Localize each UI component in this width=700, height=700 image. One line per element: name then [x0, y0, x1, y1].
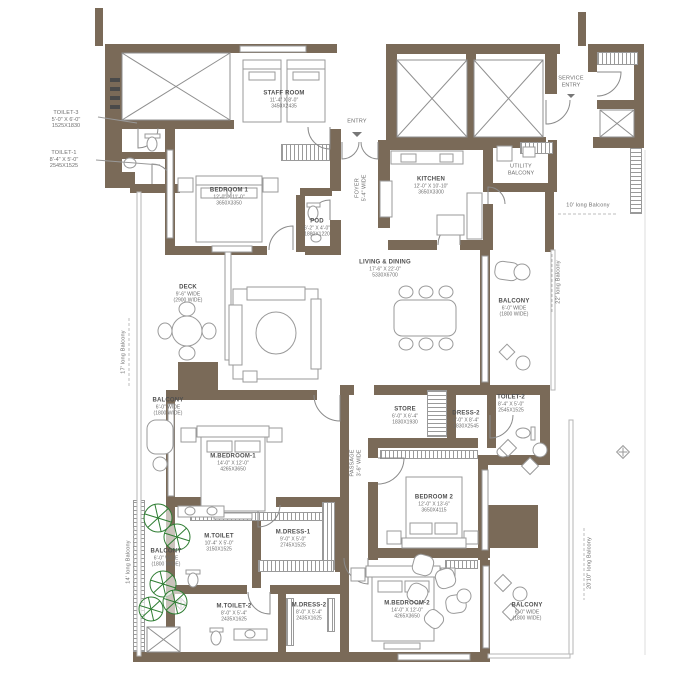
label-toilet-3-line-1: 5'-0" X 6'-0" [52, 117, 81, 124]
label-toilet-2-line-0: TOILET-2 [497, 394, 525, 401]
headboard [402, 538, 466, 548]
label-utility-balcony-line-1: BALCONY [508, 170, 534, 177]
label-m-bedroom-1-line-2: 4265X3650 [210, 467, 256, 473]
label-m-dress-2-line-0: M.DRESS-2 [292, 602, 326, 609]
door-swing [308, 127, 330, 149]
window [482, 470, 488, 550]
label-entry-line-0: ENTRY [347, 119, 367, 126]
deck-table [172, 316, 202, 346]
label-living-dining-line-0: LIVING & DINING [359, 259, 411, 266]
label-service-entry: SERVICEENTRY [558, 75, 583, 88]
label-balcony-left-mid-line-2: (1800 WIDE) [152, 411, 183, 417]
label-dim-10ft-line-0: 10' long Balcony [566, 203, 609, 210]
shaft-dash [110, 87, 120, 91]
door-swing [490, 415, 513, 438]
label-service-entry-line-1: ENTRY [558, 82, 583, 89]
washing-machine [497, 146, 512, 161]
label-balcony-left-bottom-line-0: BALCONY [150, 548, 181, 555]
label-m-dress-2: M.DRESS-28'-0" X 5'-4"2435X1625 [292, 602, 326, 621]
door-swing [314, 395, 340, 421]
label-staff-room-line-0: STAFF ROOM [263, 90, 304, 97]
label-m-bedroom-1: M.BEDROOM-114'-0" X 12'-0"4265X3650 [210, 453, 256, 472]
deck-chair [179, 302, 195, 316]
deck-chair [179, 346, 195, 360]
sink [401, 154, 416, 162]
label-m-toilet-2-line-0: M.TOILET-2 [217, 603, 252, 610]
label-m-toilet-2-line-2: 2435X1625 [217, 617, 252, 623]
label-staff-room: STAFF ROOM11'-4" X 8'-0"3450X2435 [263, 90, 304, 109]
sofa [229, 305, 242, 365]
dining-chair [419, 338, 433, 350]
label-bedroom-2-line-2: 3650X4115 [415, 508, 453, 514]
side-table [513, 587, 527, 601]
balcony-seat [499, 344, 515, 360]
utility-sink [523, 147, 535, 157]
door-swing [488, 187, 505, 204]
label-balcony-right-mid: BALCONY6'-0" WIDE(1800 WIDE) [498, 298, 529, 317]
label-toilet-3-line-0: TOILET-3 [52, 110, 81, 117]
entry-arrow [352, 132, 362, 137]
label-m-bedroom-2-line-2: 4265X3650 [384, 614, 430, 620]
label-m-dress-2-line-2: 2435X1625 [292, 616, 326, 622]
dining-chair [439, 286, 453, 298]
label-store-line-2: 1830X1930 [392, 420, 418, 426]
label-toilet-3-line-2: 1525X1830 [52, 123, 81, 130]
label-dim-17ft-line-0: 17' long Balcony [121, 330, 128, 373]
door-swing [269, 226, 293, 250]
side-table [153, 457, 167, 471]
label-m-bedroom-1-line-0: M.BEDROOM-1 [210, 453, 256, 460]
label-dim-10ft: 10' long Balcony [566, 203, 609, 210]
label-pod: POD6'-2" X 4'-0"1880X1220 [304, 218, 330, 237]
label-store: STORE6'-0" X 6'-4"1830X1930 [392, 406, 418, 425]
wc-bowl [147, 137, 157, 151]
basin [245, 630, 255, 638]
headboard [243, 60, 281, 69]
label-m-toilet-2: M.TOILET-28'-0" X 5'-4"2435X1625 [217, 603, 252, 622]
side-table [514, 264, 530, 280]
label-pod-line-0: POD [304, 218, 330, 225]
label-m-dress-1: M.DRESS-19'-0" X 5'-0"2745X1525 [276, 529, 310, 548]
label-balcony-left-mid: BALCONY6'-0" WIDE(1800 WIDE) [152, 397, 183, 416]
label-dim-20ft: 20'10" long Balcony [587, 537, 594, 589]
window [240, 46, 306, 52]
appliance-stack [380, 181, 392, 217]
label-toilet-1: TOILET-18'-4" X 5'-0"2545X1525 [50, 150, 79, 170]
nightstand [178, 178, 193, 192]
hob [440, 154, 453, 162]
label-dim-22ft: 22' long Balcony [556, 260, 563, 303]
dining-chair [419, 286, 433, 298]
deck-chair [202, 323, 216, 339]
basin [185, 507, 195, 515]
label-passage: PASSAGE3'-6" WIDE [349, 449, 362, 476]
pillow [249, 72, 275, 80]
label-m-bedroom-2: M.BEDROOM-214'-0" X 12'-0"4265X3650 [384, 600, 430, 619]
floor-plan: STAFF ROOM11'-4" X 8'-0"3450X2435TOILET-… [0, 0, 700, 700]
door-swing [361, 142, 378, 159]
label-dim-17ft: 17' long Balcony [121, 330, 128, 373]
label-m-toilet-line-2: 3150X1525 [204, 547, 234, 553]
headboard [287, 60, 325, 69]
window [167, 150, 173, 238]
pillow [207, 441, 232, 452]
deck-chair [158, 323, 172, 339]
label-deck: DECK9'-6" WIDE(2900 WIDE) [174, 284, 203, 303]
dining-chair [399, 286, 413, 298]
label-foyer-line-0: FOYER [354, 175, 361, 202]
label-utility-balcony-line-0: UTILITY [508, 163, 534, 170]
label-m-dress-1-line-2: 2745X1525 [276, 543, 310, 549]
label-toilet-2: TOILET-28'-4" X 5'-0"2545X1525 [497, 394, 525, 413]
label-bedroom-1-line-2: 3650X3350 [210, 201, 248, 207]
pillow [378, 581, 402, 592]
nightstand [263, 178, 278, 192]
rail [137, 192, 141, 656]
tv-unit [311, 299, 321, 369]
label-entry: ENTRY [347, 119, 367, 126]
label-balcony-left-mid-line-0: BALCONY [152, 397, 183, 404]
bed [196, 176, 262, 242]
label-balcony-right-bottom-line-2: (1800 WIDE) [511, 616, 542, 622]
headboard [196, 176, 262, 185]
window [483, 566, 489, 648]
label-toilet-1-line-2: 2545X1525 [50, 163, 79, 170]
label-foyer-line-1: 5'-4" WIDE [361, 175, 368, 202]
label-dim-20ft-line-0: 20'10" long Balcony [587, 537, 594, 589]
rail [488, 654, 570, 658]
wc-bowl [188, 573, 198, 587]
label-pod-line-2: 1880X1220 [304, 232, 330, 238]
label-kitchen-line-0: KITCHEN [414, 176, 448, 183]
shaft-dash [110, 105, 120, 109]
pouf [243, 371, 257, 382]
label-bedroom-1: BEDROOM 112'-0" X 11'-0"3650X3350 [210, 187, 248, 206]
sofa [247, 287, 305, 300]
side-table [457, 589, 471, 603]
label-toilet-1-line-1: 8'-4" X 5'-0" [50, 157, 79, 164]
label-dim-14ft: 14' long Balcony [126, 540, 133, 583]
label-staff-room-line-2: 3450X2435 [263, 104, 304, 110]
nightstand [351, 568, 365, 581]
basin [207, 507, 217, 515]
label-deck-line-0: DECK [174, 284, 203, 291]
headboard [197, 426, 269, 437]
label-store-line-0: STORE [392, 406, 418, 413]
plan-graphics [0, 0, 700, 700]
label-balcony-right-mid-line-2: (1800 WIDE) [498, 312, 529, 318]
window [398, 654, 470, 660]
label-kitchen-line-2: 3650X3300 [414, 190, 448, 196]
window [482, 256, 488, 382]
bench [384, 643, 420, 649]
label-bedroom-1-line-0: BEDROOM 1 [210, 187, 248, 194]
dining-table [394, 300, 456, 336]
nightstand [387, 531, 401, 544]
label-bedroom-2: BEDROOM 212'-0" X 13'-6"3650X4115 [415, 494, 453, 513]
label-toilet-1-line-0: TOILET-1 [50, 150, 79, 157]
label-dress-2-line-0: DRESS-2 [452, 410, 479, 417]
rail [569, 420, 573, 654]
side-table [516, 356, 530, 370]
bench [212, 246, 252, 252]
coffee-table [256, 312, 296, 354]
label-passage-line-0: PASSAGE [349, 449, 356, 476]
dining-chair [439, 338, 453, 350]
door-swing [597, 72, 621, 96]
dining-chair [399, 338, 413, 350]
shaft-dash [110, 96, 120, 100]
island [437, 215, 464, 235]
label-living-dining-line-2: 5330X6700 [359, 273, 411, 279]
side-table [533, 443, 547, 457]
label-living-dining: LIVING & DINING17'-6" X 22'-0"5330X6700 [359, 259, 411, 278]
label-bedroom-2-line-0: BEDROOM 2 [415, 494, 453, 501]
label-service-entry-line-0: SERVICE [558, 75, 583, 82]
label-balcony-right-mid-line-0: BALCONY [498, 298, 529, 305]
label-balcony-right-bottom-line-0: BALCONY [511, 602, 542, 609]
label-m-dress-1-line-0: M.DRESS-1 [276, 529, 310, 536]
label-m-toilet-line-0: M.TOILET [204, 533, 234, 540]
wc-tank [531, 427, 535, 440]
balcony-seat [522, 458, 539, 475]
label-dim-14ft-line-0: 14' long Balcony [126, 540, 133, 583]
fridge [467, 193, 482, 239]
nightstand [181, 428, 196, 442]
label-toilet-3: TOILET-35'-0" X 6'-0"1525X1830 [52, 110, 81, 130]
wc-bowl [211, 631, 221, 645]
pillow [235, 441, 260, 452]
label-kitchen: KITCHEN12'-0" X 10'-10"3650X3300 [414, 176, 448, 195]
label-dress-2: DRESS-26'-0" X 8'-4"1830X2545 [452, 410, 479, 429]
label-balcony-right-bottom: BALCONY6'-0" WIDE(1800 WIDE) [511, 602, 542, 621]
door-swing [546, 100, 570, 124]
label-utility-balcony: UTILITYBALCONY [508, 163, 534, 176]
door-swing [378, 458, 404, 484]
label-balcony-left-bottom-line-2: (1800 WIDE) [150, 562, 181, 568]
balcony-seat [495, 575, 512, 592]
label-balcony-left-bottom: BALCONY6'-0" WIDE(1800 WIDE) [150, 548, 181, 567]
label-dress-2-line-2: 1830X2545 [452, 424, 479, 430]
label-dim-22ft-line-0: 22' long Balcony [556, 260, 563, 303]
pillow [293, 72, 319, 80]
service-entry-arrow [567, 94, 575, 98]
label-foyer: FOYER5'-4" WIDE [354, 175, 367, 202]
label-deck-line-2: (2900 WIDE) [174, 298, 203, 304]
door-swing [342, 142, 359, 159]
pillow [410, 523, 432, 534]
label-m-toilet: M.TOILET10'-4" X 5'-0"3150X1525 [204, 533, 234, 552]
lounge-chair [147, 420, 173, 454]
wc-bowl [516, 428, 530, 438]
label-toilet-2-line-2: 2545X1525 [497, 408, 525, 414]
pillow [435, 523, 457, 534]
label-passage-line-1: 3'-6" WIDE [356, 449, 363, 476]
label-m-bedroom-2-line-0: M.BEDROOM-2 [384, 600, 430, 607]
shaft-dash [110, 78, 120, 82]
